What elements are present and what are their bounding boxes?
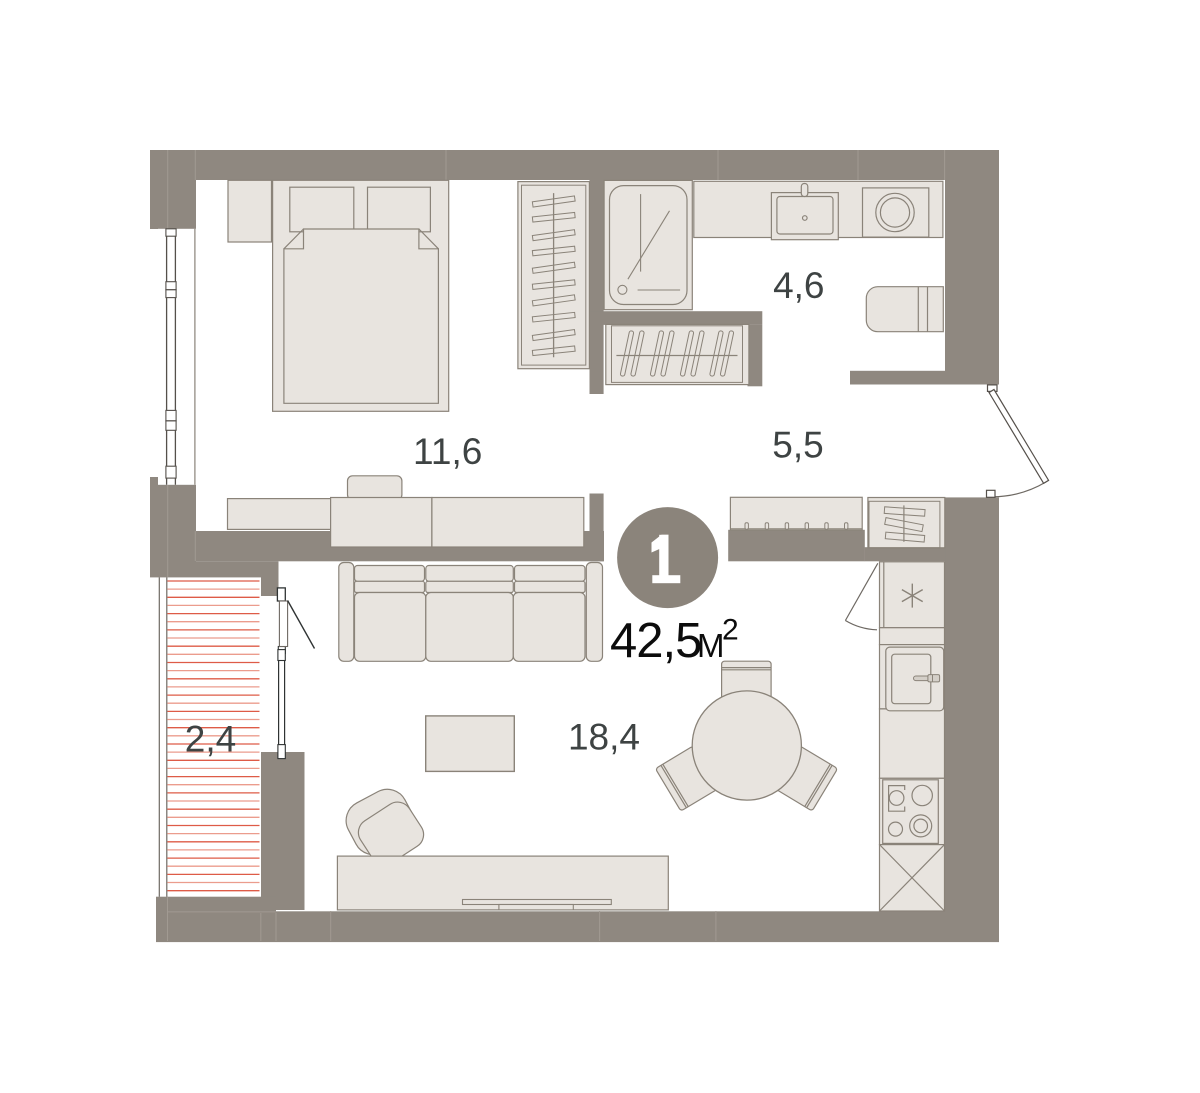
svg-text:2,4: 2,4 (185, 719, 236, 760)
svg-text:М: М (697, 627, 725, 664)
svg-text:2: 2 (722, 614, 739, 647)
svg-text:4,6: 4,6 (773, 265, 824, 306)
svg-text:18,4: 18,4 (568, 717, 640, 758)
svg-text:11,6: 11,6 (413, 431, 482, 472)
svg-text:5,5: 5,5 (772, 425, 823, 466)
svg-text:42,5: 42,5 (610, 614, 701, 668)
